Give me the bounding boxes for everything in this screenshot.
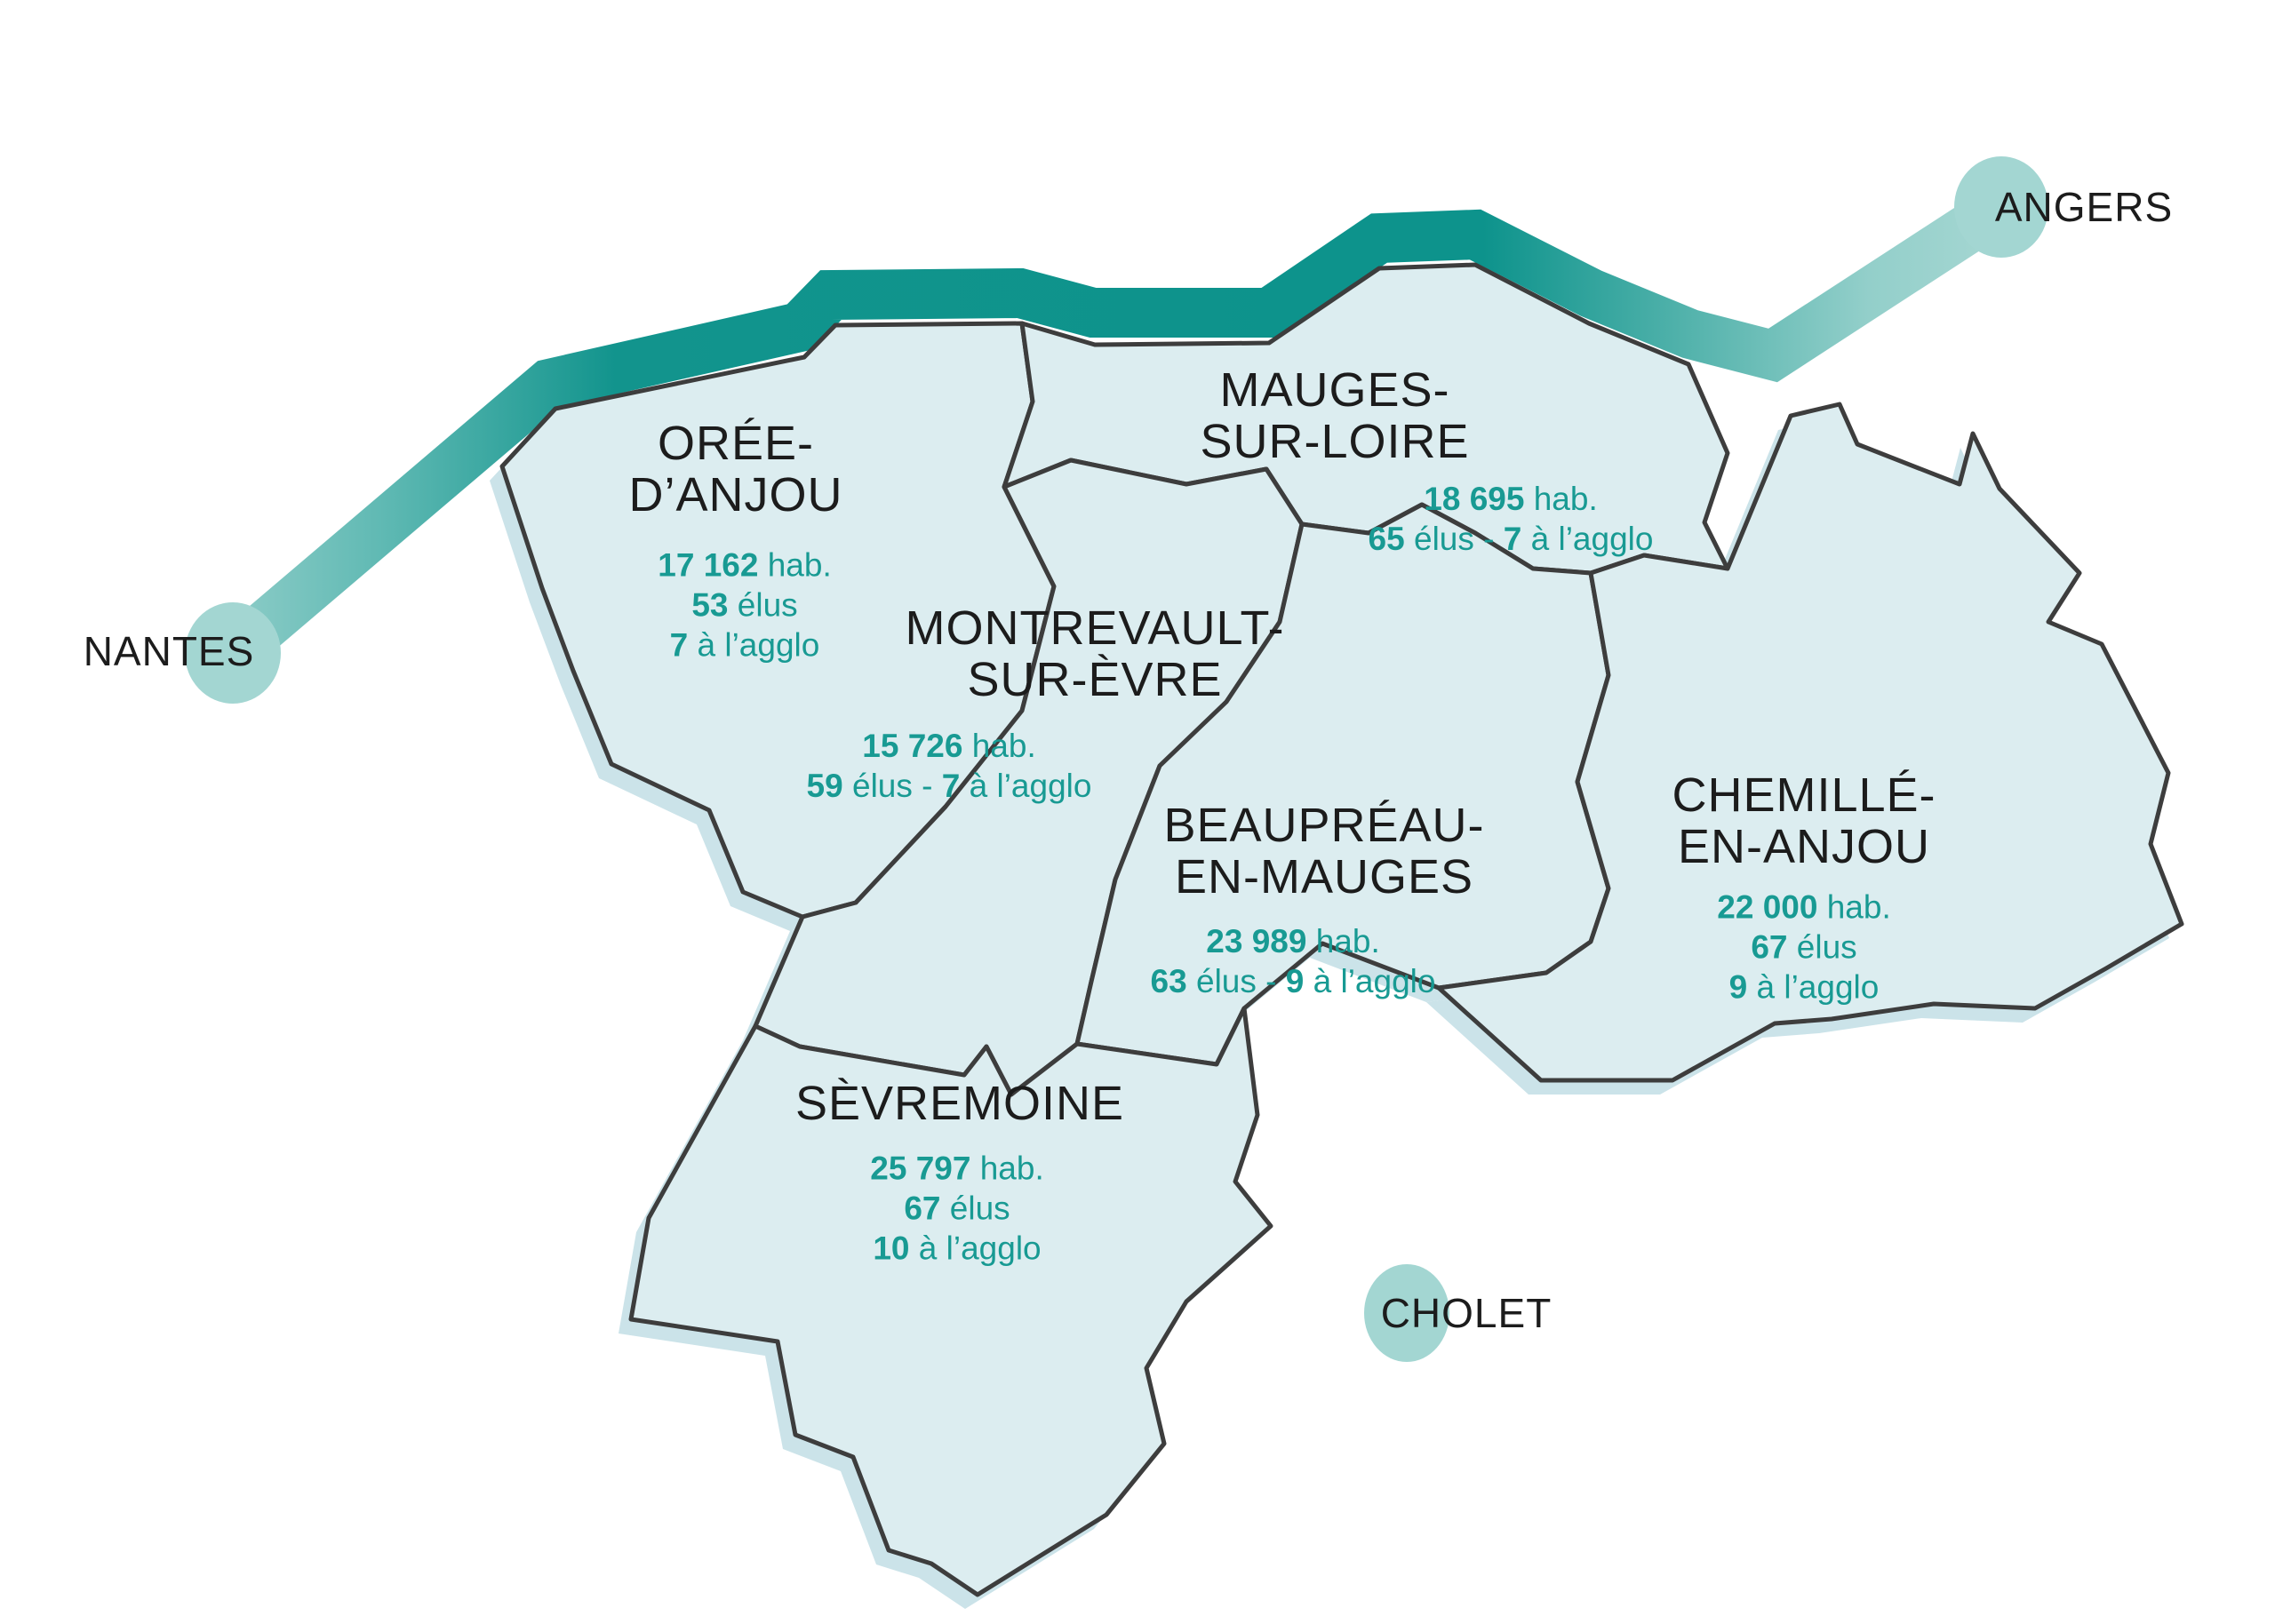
region-title-line: SÈVREMOINE [795,1078,1124,1129]
stat-line: 59 élus - 7 à l’agglo [807,766,1092,806]
city-label-nantes: NANTES [84,627,255,675]
region-title-oree-danjou: ORÉE- D’ANJOU [628,418,842,521]
region-title-line: EN-MAUGES [1163,851,1484,903]
region-title-line: EN-ANJOU [1672,821,1936,872]
region-title-chemille-en-anjou: CHEMILLÉ- EN-ANJOU [1672,769,1936,872]
mauges-communes-map: NANTES ANGERS CHOLET ORÉE- D’ANJOU 17 16… [0,0,2275,1624]
stat-line: 7 à l’agglo [658,625,831,665]
stat-line: 15 726 hab. [807,726,1092,766]
region-stats-beaupreau-en-mauges: 23 989 hab. 63 élus - 9 à l’agglo [1151,921,1436,1001]
region-title-line: MAUGES- [1200,364,1469,416]
region-stats-chemille-en-anjou: 22 000 hab. 67 élus 9 à l’agglo [1717,888,1890,1007]
stat-line: 22 000 hab. [1717,888,1890,927]
city-label-cholet: CHOLET [1381,1289,1553,1337]
stat-line: 18 695 hab. [1369,479,1654,519]
region-title-sevremoine: SÈVREMOINE [795,1078,1124,1129]
stat-line: 65 élus - 7 à l’agglo [1369,519,1654,559]
stat-line: 9 à l’agglo [1717,967,1890,1007]
region-stats-oree-danjou: 17 162 hab. 53 élus 7 à l’agglo [658,545,831,665]
region-title-line: SUR-ÈVRE [905,654,1284,705]
stat-line: 25 797 hab. [870,1149,1043,1189]
region-stats-montrevault-sur-evre: 15 726 hab. 59 élus - 7 à l’agglo [807,726,1092,806]
stat-line: 53 élus [658,585,831,625]
region-title-line: CHEMILLÉ- [1672,769,1936,821]
stat-line: 63 élus - 9 à l’agglo [1151,961,1436,1001]
stat-line: 17 162 hab. [658,545,831,585]
stat-line: 67 élus [1717,927,1890,967]
stat-line: 67 élus [870,1189,1043,1229]
region-title-montrevault-sur-evre: MONTREVAULT- SUR-ÈVRE [905,602,1284,705]
region-stats-sevremoine: 25 797 hab. 67 élus 10 à l’agglo [870,1149,1043,1269]
region-title-line: MONTREVAULT- [905,602,1284,654]
region-title-mauges-sur-loire: MAUGES- SUR-LOIRE [1200,364,1469,467]
region-title-line: D’ANJOU [628,469,842,521]
stat-line: 10 à l’agglo [870,1229,1043,1269]
region-title-line: BEAUPRÉAU- [1163,800,1484,851]
region-title-beaupreau-en-mauges: BEAUPRÉAU- EN-MAUGES [1163,800,1484,903]
region-title-line: ORÉE- [628,418,842,469]
city-label-angers: ANGERS [1995,183,2173,231]
region-stats-mauges-sur-loire: 18 695 hab. 65 élus - 7 à l’agglo [1369,479,1654,559]
stat-line: 23 989 hab. [1151,921,1436,961]
region-title-line: SUR-LOIRE [1200,416,1469,467]
